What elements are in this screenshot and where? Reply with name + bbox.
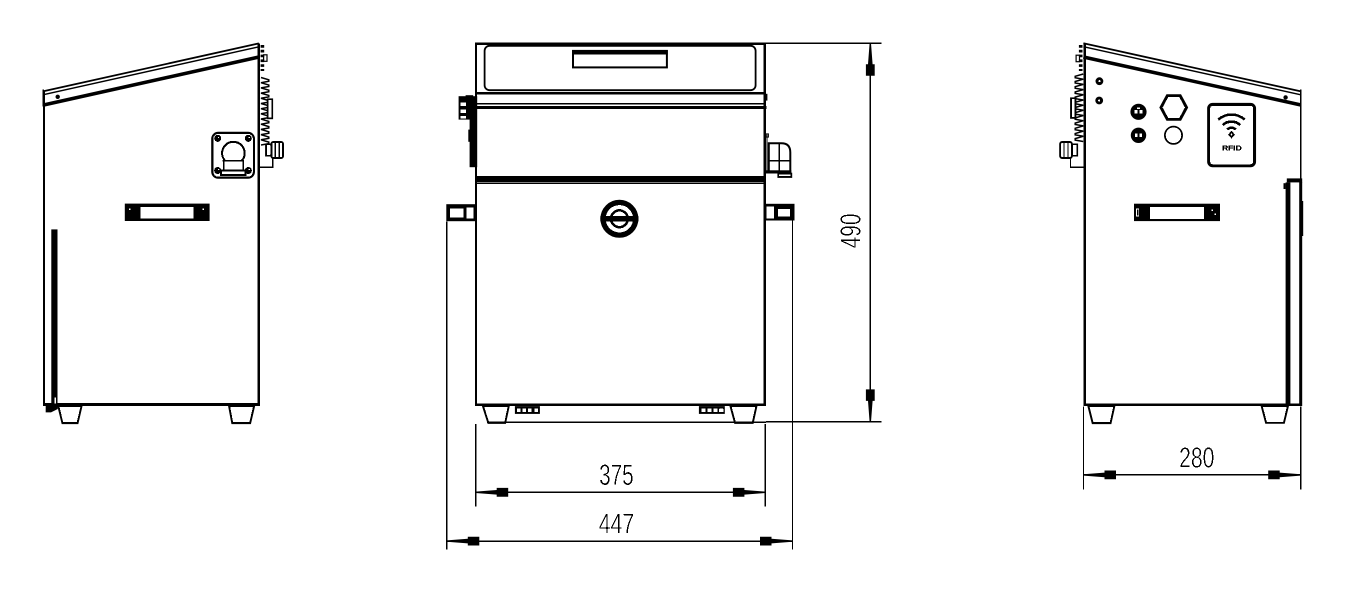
svg-text:375: 375 (599, 459, 634, 492)
svg-text:490: 490 (835, 214, 867, 249)
svg-text:RFID: RFID (1222, 143, 1242, 152)
svg-text:280: 280 (1179, 442, 1214, 474)
svg-text:447: 447 (599, 508, 635, 540)
